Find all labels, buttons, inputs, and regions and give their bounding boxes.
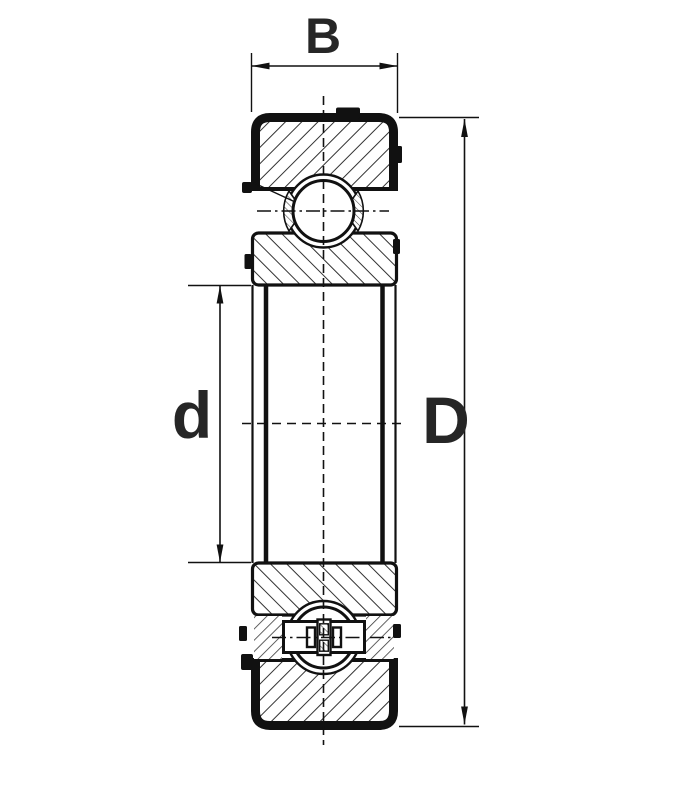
D-arrow-top (461, 119, 468, 137)
notch-right-upper (394, 146, 402, 163)
b-arrow-left (252, 63, 270, 70)
dimension-label-outer-D: D (413, 387, 479, 453)
b-arrow-right (380, 63, 398, 70)
dimension-label-width-B: B (293, 11, 353, 61)
notch-left-cage-level (239, 626, 247, 641)
notch-right-cage-level (393, 624, 401, 638)
bearing-technical-drawing: B d D (0, 0, 678, 792)
d-arrow-bottom (217, 545, 224, 563)
notch-right-shoulder (393, 239, 400, 254)
top-surface-lug (336, 108, 360, 119)
seal-recess-left-top (242, 182, 252, 193)
notch-left-shoulder (245, 254, 252, 269)
seal-recess-left-bottom (241, 654, 253, 670)
dimension-label-bore-d: d (162, 382, 222, 448)
D-arrow-bottom (461, 707, 468, 725)
bearing-drawing-svg (0, 0, 678, 792)
d-arrow-top (217, 286, 224, 304)
